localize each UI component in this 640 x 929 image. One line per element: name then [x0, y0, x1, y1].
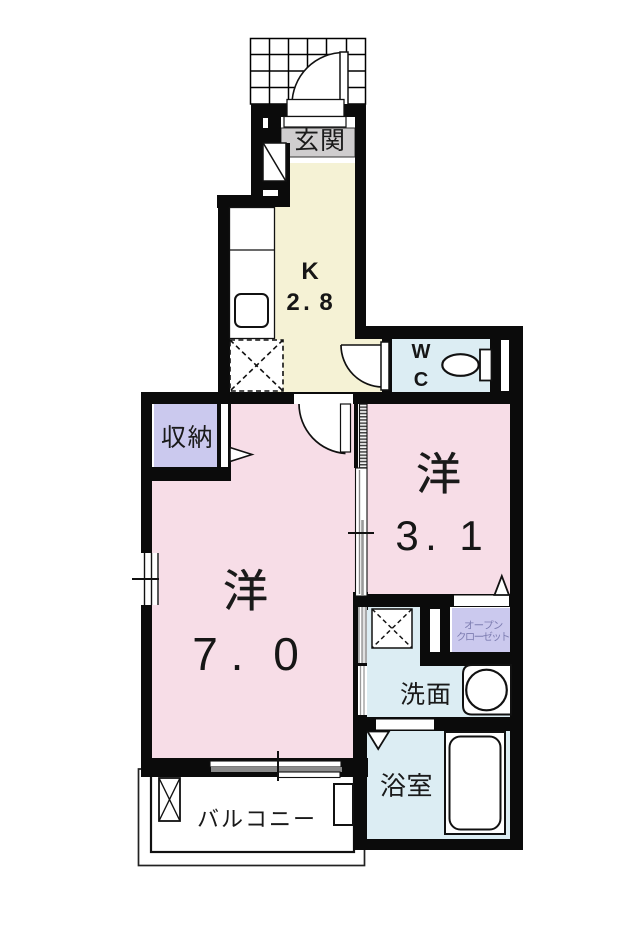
svg-text:.: . [425, 512, 437, 559]
svg-text:K: K [301, 258, 319, 285]
svg-text:3: 3 [395, 512, 418, 559]
svg-text:.: . [303, 289, 310, 316]
svg-text:8: 8 [319, 289, 332, 316]
svg-text:C: C [414, 369, 428, 391]
svg-text:W: W [412, 341, 431, 363]
svg-text:.: . [231, 628, 244, 680]
svg-text:0: 0 [273, 628, 299, 680]
svg-text:2: 2 [286, 289, 299, 316]
svg-text:7: 7 [192, 628, 218, 680]
svg-text:1: 1 [459, 512, 482, 559]
